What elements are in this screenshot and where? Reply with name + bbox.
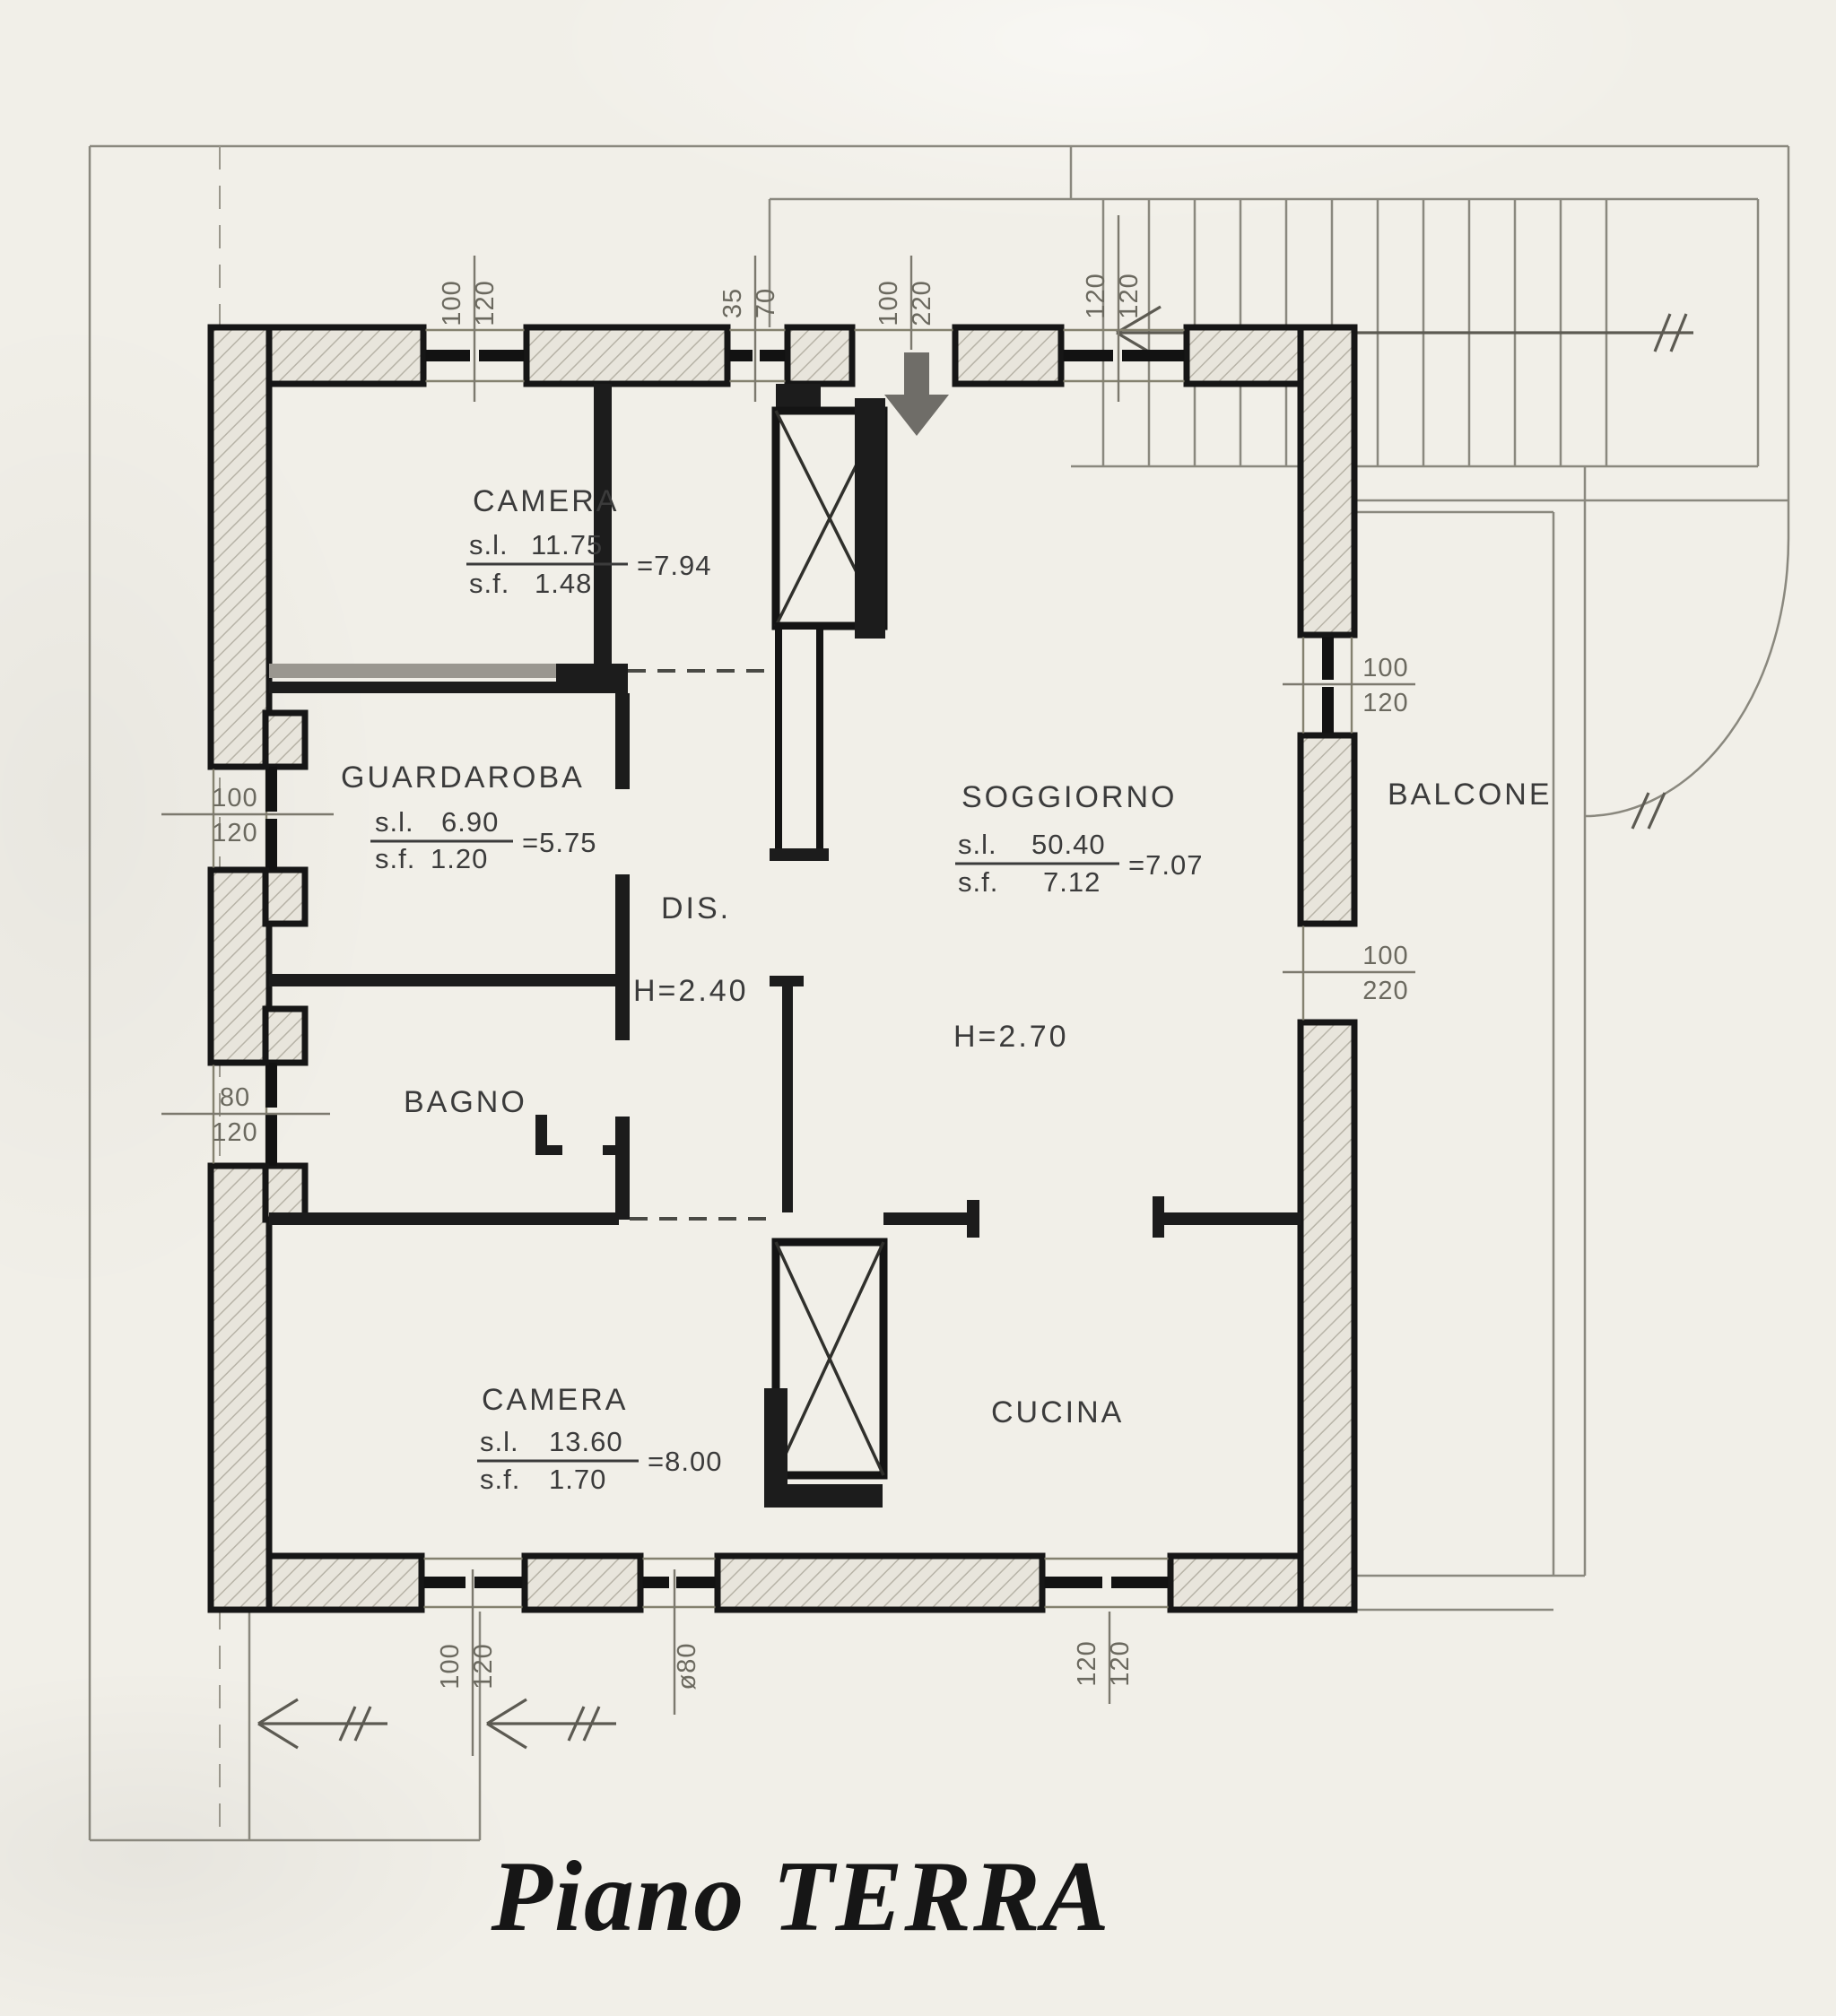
camera1-sl-label: s.l. [469,529,509,560]
entrance-arrow-icon [884,352,949,436]
dim-bottom-1-den: 120 [469,1643,498,1689]
floorplan-page: 100 120 35 70 100 220 120 120 100 120 ø8… [0,0,1836,2016]
room-label-cucina: CUCINA [991,1395,1124,1429]
dis-height: H=2.40 [633,974,749,1008]
soggiorno-sl-label: s.l. [958,829,997,860]
room-label-camera1: CAMERA [473,484,619,518]
dim-bottom-1-num: 100 [436,1643,465,1689]
site-arrow-icons [258,1699,616,1748]
dim-left-1-num: 100 [212,784,257,812]
room-label-camera2: CAMERA [482,1383,628,1417]
guardaroba-sl-label: s.l. [375,806,414,838]
soggiorno-sf-label: s.f. [958,866,998,898]
dim-top-2-num: 35 [718,288,747,318]
camera2-sl-label: s.l. [480,1426,519,1457]
dim-left-2-num: 80 [220,1083,250,1112]
room-label-dis: DIS. [661,891,731,925]
room-label-bagno: BAGNO [404,1085,527,1119]
dim-left-2-den: 120 [212,1118,257,1147]
room-label-guardaroba: GUARDAROBA [341,760,585,795]
floor-title: Piano TERRA [490,1841,1110,1952]
soggiorno-sl-value: 50.40 [1031,829,1106,860]
camera2-eq: =8.00 [648,1446,722,1477]
dim-right-2-den: 220 [1362,977,1408,1005]
dim-top-4-den: 120 [1115,273,1144,318]
dim-right-1-den: 120 [1362,689,1408,717]
guardaroba-eq: =5.75 [522,827,596,858]
camera1-sf-label: s.f. [469,568,509,599]
camera2-sf-value: 1.70 [549,1464,606,1495]
arc-end-tick [1632,793,1665,829]
camera2-sf-label: s.f. [480,1464,520,1495]
dim-top-1-den: 120 [471,280,500,326]
dim-right-2-num: 100 [1362,942,1408,970]
guardaroba-sl-value: 6.90 [441,806,499,838]
guardaroba-sf-label: s.f. [375,843,415,874]
room-label-balcone: BALCONE [1388,778,1553,812]
soggiorno-eq: =7.07 [1128,849,1203,881]
camera1-sl-value: 11.75 [531,529,603,560]
dim-top-4-num: 120 [1082,273,1110,318]
dim-top-3-num: 100 [874,280,903,326]
roof-arc [1585,538,1788,816]
camera1-eq: =7.94 [637,550,711,581]
interior-walls [269,384,1301,1508]
dim-right-1-num: 100 [1362,654,1408,682]
dim-left-1-den: 120 [212,819,257,847]
dim-bottom-3-den: 120 [1106,1640,1135,1686]
soggiorno-sf-value: 7.12 [1043,866,1101,898]
dim-top-3-den: 220 [908,280,936,326]
guardaroba-sf-value: 1.20 [431,843,488,874]
room-label-soggiorno: SOGGIORNO [962,780,1177,814]
dim-top-1-num: 100 [438,280,466,326]
camera2-sl-value: 13.60 [549,1426,623,1457]
floorplan-drawing: 100 120 35 70 100 220 120 120 100 120 ø8… [0,0,1836,2016]
dim-bottom-2-num: ø80 [673,1643,701,1690]
soggiorno-height: H=2.70 [953,1020,1069,1054]
camera1-sf-value: 1.48 [535,568,592,599]
dim-bottom-3-num: 120 [1073,1640,1101,1686]
dim-top-2-den: 70 [752,288,780,318]
